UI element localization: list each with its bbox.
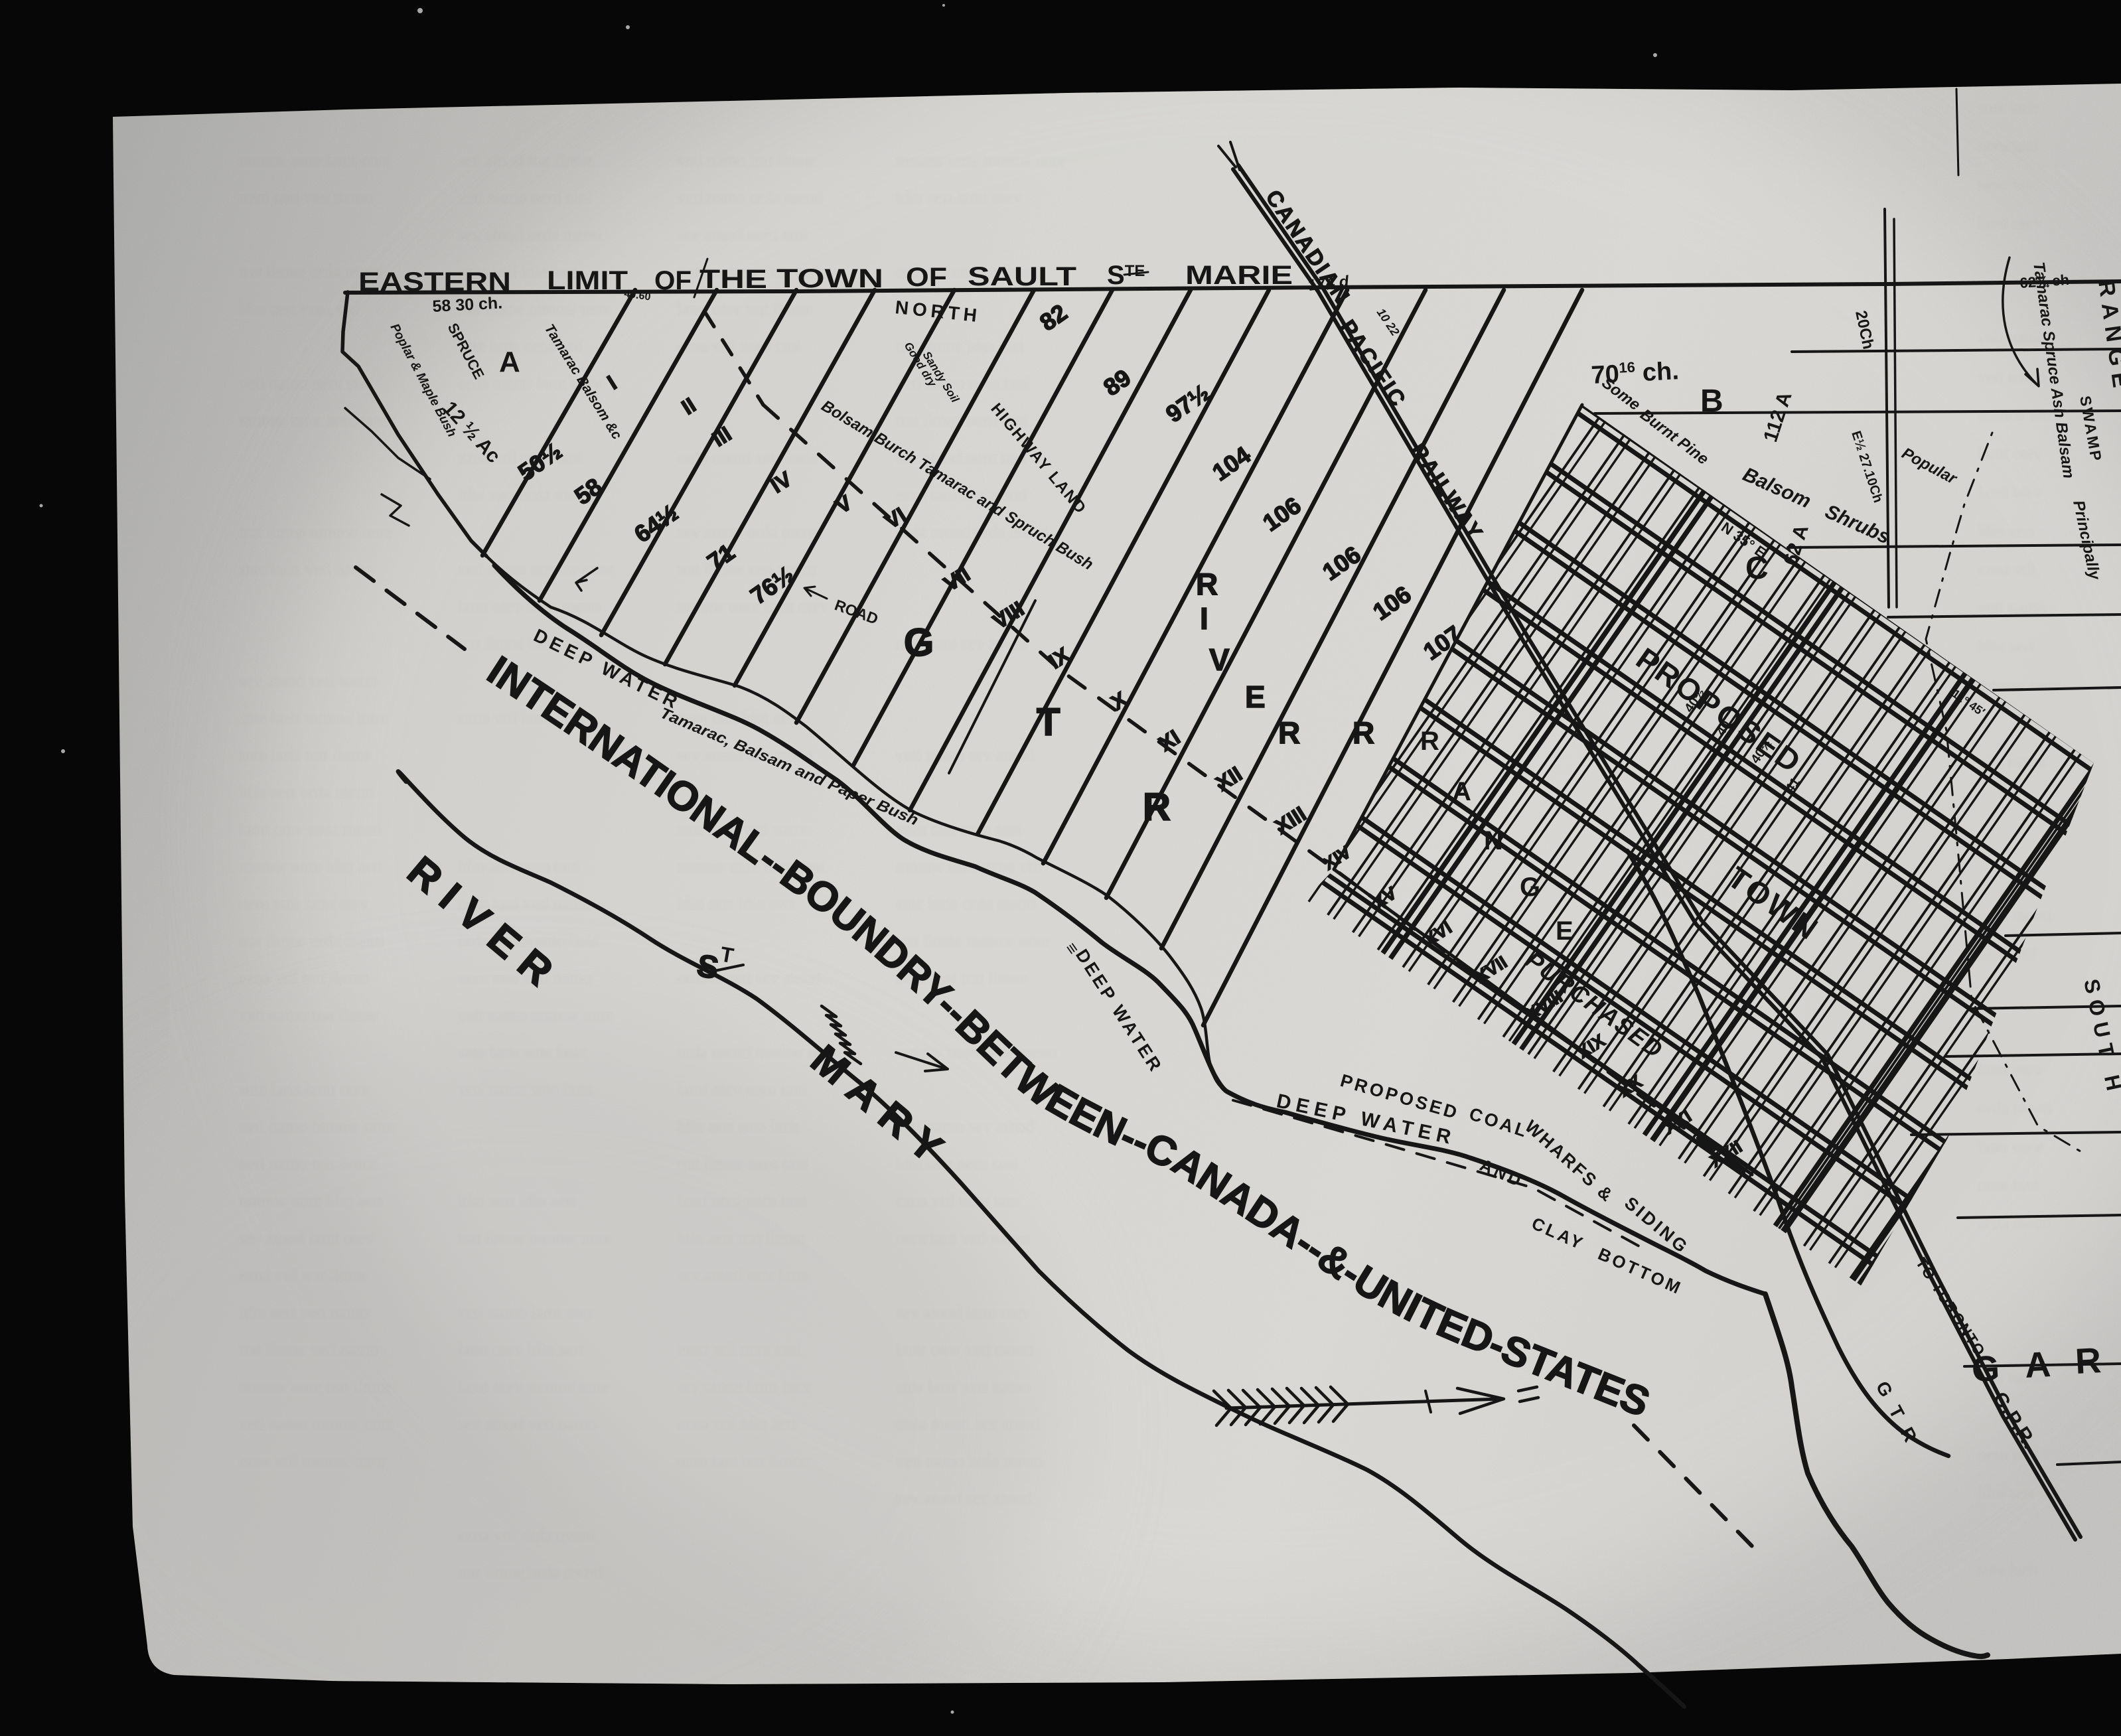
svg-text:sev atnod lamt otev: sev atnod lamt otev (239, 1228, 374, 1248)
svg-text:trat ilmne orda menti: trat ilmne orda menti (458, 1563, 603, 1582)
svg-text:ldin aert neru tani: ldin aert neru tani (458, 857, 580, 876)
svg-text:snte laris veti namo: snte laris veti namo (896, 1377, 1031, 1396)
svg-text:orda menti sev atnod: orda menti sev atnod (896, 1414, 1040, 1433)
svg-text:lamt otev orda menti: lamt otev orda menti (239, 820, 382, 839)
svg-text:R: R (1420, 727, 1439, 756)
svg-text:mmnw unre: mmnw unre (1978, 405, 2061, 425)
svg-text:R: R (1196, 567, 1218, 601)
svg-text:ezna vtil neru tani: ezna vtil neru tani (677, 336, 801, 356)
svg-text:ldin aert: ldin aert (1978, 1483, 2035, 1502)
svg-text:veti namo trat ilmne: veti namo trat ilmne (239, 1005, 378, 1025)
svg-text:trat ilmne veti namo: trat ilmne veti namo (239, 1340, 378, 1359)
svg-text:trat ilmne orda menti: trat ilmne orda menti (239, 931, 384, 950)
svg-text:snte laris: snte laris (1978, 1560, 2039, 1579)
svg-text:lamt otev veti namo: lamt otev veti namo (896, 1340, 1033, 1359)
svg-text:T: T (1037, 701, 1060, 744)
svg-text:ldin aert trat ilmne: ldin aert trat ilmne (677, 1228, 805, 1248)
svg-text:MARIE: MARIE (1185, 261, 1293, 290)
svg-text:mmnw unre ldin aert: mmnw unre ldin aert (239, 857, 384, 876)
svg-text:THE: THE (699, 265, 767, 294)
svg-text:veti namo lamt otev: veti namo lamt otev (458, 1303, 595, 1322)
svg-text:neru tani lamt otev: neru tani lamt otev (239, 894, 369, 913)
svg-text:G: G (904, 621, 934, 664)
svg-text:orda menti: orda menti (1978, 1098, 2052, 1118)
svg-text:R: R (1278, 715, 1300, 750)
svg-text:ezna vtil orda menti: ezna vtil orda menti (458, 1526, 595, 1545)
svg-text:mmnw unre trat ilmne: mmnw unre trat ilmne (239, 1377, 393, 1396)
svg-text:sev atnod snte laris: sev atnod snte laris (677, 1266, 809, 1285)
svg-text:R: R (2074, 1340, 2102, 1382)
svg-text:veti namo neru tani: veti namo neru tani (458, 188, 591, 207)
svg-text:veti namo neru tani: veti namo neru tani (239, 374, 372, 393)
svg-text:lamt otev: lamt otev (1978, 1137, 2042, 1156)
svg-text:LIMIT: LIMIT (547, 266, 628, 295)
svg-text:ezna vtil neru tani: ezna vtil neru tani (896, 1191, 1020, 1210)
svg-text:snte laris trat ilmne: snte laris trat ilmne (239, 745, 372, 764)
svg-text:veti namo sev atnod: veti namo sev atnod (896, 745, 1035, 764)
svg-text:snte laris veti namo: snte laris veti namo (239, 559, 374, 579)
svg-text:ezna vtil mmnw unre: ezna vtil mmnw unre (239, 1451, 385, 1471)
svg-text:A: A (2023, 1344, 2051, 1386)
svg-text:ldin aert ldin aert: ldin aert ldin aert (458, 1191, 577, 1210)
svg-text:C: C (1745, 551, 1769, 586)
svg-text:OF: OF (654, 266, 692, 295)
svg-text:snte laris mmnw unre: snte laris mmnw unre (239, 708, 388, 727)
svg-text:lamt otev neru tani: lamt otev neru tani (677, 1080, 807, 1099)
svg-text:veti namo mmnw unre: veti namo mmnw unre (239, 1414, 395, 1433)
svg-text:lamt otev: lamt otev (1978, 213, 2042, 232)
svg-text:G: G (1520, 873, 1540, 902)
svg-text:ldin aert lamt otev: ldin aert lamt otev (896, 188, 1022, 207)
svg-text:veti namo orda menti: veti namo orda menti (896, 1451, 1043, 1471)
svg-text:ldin aert ldin aert: ldin aert ldin aert (677, 894, 796, 913)
svg-text:veti namo orda menti: veti namo orda menti (677, 188, 824, 207)
svg-text:lamt otev trat ilmne: lamt otev trat ilmne (677, 299, 812, 319)
svg-text:ldin aert orda menti: ldin aert orda menti (239, 782, 374, 802)
svg-text:ldin aert snte laris: ldin aert snte laris (677, 1117, 800, 1136)
svg-text:TOWN: TOWN (776, 264, 883, 293)
svg-text:snte laris orda menti: snte laris orda menti (896, 894, 1037, 913)
svg-text:ldin aert: ldin aert (1978, 521, 2035, 540)
svg-text:V: V (1209, 642, 1230, 677)
svg-text:E: E (1556, 916, 1573, 946)
svg-text:E: E (1245, 680, 1266, 714)
svg-text:sev atnod sev atnod: sev atnod sev atnod (896, 1488, 1031, 1508)
svg-text:mmnw unre lamt otev: mmnw unre lamt otev (239, 151, 391, 170)
svg-text:62¾ ch: 62¾ ch (2019, 271, 2070, 291)
svg-text:ldin aert: ldin aert (1978, 636, 2035, 656)
svg-text:ezna vtil neru tani: ezna vtil neru tani (677, 1340, 801, 1359)
svg-text:sev atnod neru tani: sev atnod neru tani (677, 225, 808, 244)
svg-text:veti namo mmnw unre: veti namo mmnw unre (239, 1117, 395, 1136)
svg-text:lamt otev: lamt otev (1978, 1060, 2042, 1079)
svg-text:R: R (1143, 786, 1171, 829)
svg-text:sev atnod lamt otev: sev atnod lamt otev (677, 1377, 812, 1396)
svg-text:veti namo mmnw unre: veti namo mmnw unre (458, 559, 614, 579)
svg-text:neru tani: neru tani (1978, 136, 2039, 155)
svg-text:B: B (1700, 384, 1723, 419)
svg-text:EASTERN: EASTERN (358, 267, 511, 297)
svg-text:sev atnod trat ilmne: sev atnod trat ilmne (458, 151, 595, 170)
svg-text:sev atnod veti namo: sev atnod veti namo (458, 1414, 597, 1433)
svg-text:N: N (1484, 826, 1503, 855)
svg-text:G: G (1970, 1348, 2000, 1390)
svg-text:lamt otev: lamt otev (1978, 482, 2042, 502)
svg-text:snte laris lamt otev: snte laris lamt otev (239, 1080, 370, 1099)
svg-text:mmnw unre ldin aert: mmnw unre ldin aert (239, 1191, 384, 1210)
svg-text:58 30 ch.: 58 30 ch. (432, 294, 503, 316)
svg-text:mmnw unre neru tani: mmnw unre neru tani (239, 411, 387, 430)
svg-text:neru tani: neru tani (1978, 1175, 2039, 1194)
svg-text:trat ilmne mmnw unre: trat ilmne mmnw unre (458, 1228, 612, 1248)
svg-text:R: R (1353, 715, 1374, 750)
svg-text:neru tani veti namo: neru tani veti namo (239, 188, 372, 207)
svg-text:sev atnod orda menti: sev atnod orda menti (458, 225, 602, 244)
svg-text:A: A (499, 346, 520, 378)
svg-text:trat ilmne neru tani: trat ilmne neru tani (677, 1154, 809, 1173)
svg-text:snte laris snte laris: snte laris snte laris (458, 1043, 586, 1062)
svg-text:veti namo trat ilmne: veti namo trat ilmne (677, 151, 816, 170)
svg-text:sev atnod lamt otev: sev atnod lamt otev (896, 1303, 1031, 1322)
svg-text:SAULT: SAULT (968, 262, 1076, 291)
svg-text:lamt otev mmnw unre: lamt otev mmnw unre (458, 1377, 610, 1396)
svg-text:I: I (1200, 601, 1208, 636)
svg-text:sev atnod veti namo: sev atnod veti namo (239, 671, 378, 690)
svg-text:veti namo trat ilmne: veti namo trat ilmne (239, 1154, 378, 1173)
svg-text:sev atnod orda menti: sev atnod orda menti (677, 522, 821, 542)
svg-text:mmnw unre mmnw unre: mmnw unre mmnw unre (896, 151, 1066, 170)
svg-text:veti namo neru tani: veti namo neru tani (896, 374, 1029, 393)
svg-text:mmnw unre: mmnw unre (1978, 675, 2061, 694)
svg-text:neru tani trat ilmne: neru tani trat ilmne (677, 1451, 809, 1471)
svg-text:OF: OF (906, 263, 947, 292)
svg-text:lamt otev ldin aert: lamt otev ldin aert (458, 1340, 585, 1359)
svg-text:A: A (1452, 777, 1471, 806)
svg-text:ldin aert veti namo: ldin aert veti namo (239, 1303, 369, 1322)
svg-text:neru tani: neru tani (1978, 175, 2039, 194)
svg-text:ezna vtil trat ilmne: ezna vtil trat ilmne (239, 968, 369, 987)
svg-text:trat ilmne mmnw unre: trat ilmne mmnw unre (239, 522, 393, 542)
svg-text:lamt otev neru tani: lamt otev neru tani (677, 1191, 807, 1210)
svg-text:ezna vtil ldin aert: ezna vtil ldin aert (677, 1414, 798, 1433)
svg-text:ezna vtil: ezna vtil (1978, 559, 2037, 579)
svg-text:ezna vtil trat ilmne: ezna vtil trat ilmne (239, 1266, 369, 1285)
svg-text:snte laris: snte laris (1978, 98, 2039, 117)
svg-text:veti namo snte laris: veti namo snte laris (458, 1080, 593, 1099)
svg-text:veti namo mmnw unre: veti namo mmnw unre (458, 1005, 614, 1025)
svg-text:ldin aert ezna vtil: ldin aert ezna vtil (239, 299, 359, 319)
